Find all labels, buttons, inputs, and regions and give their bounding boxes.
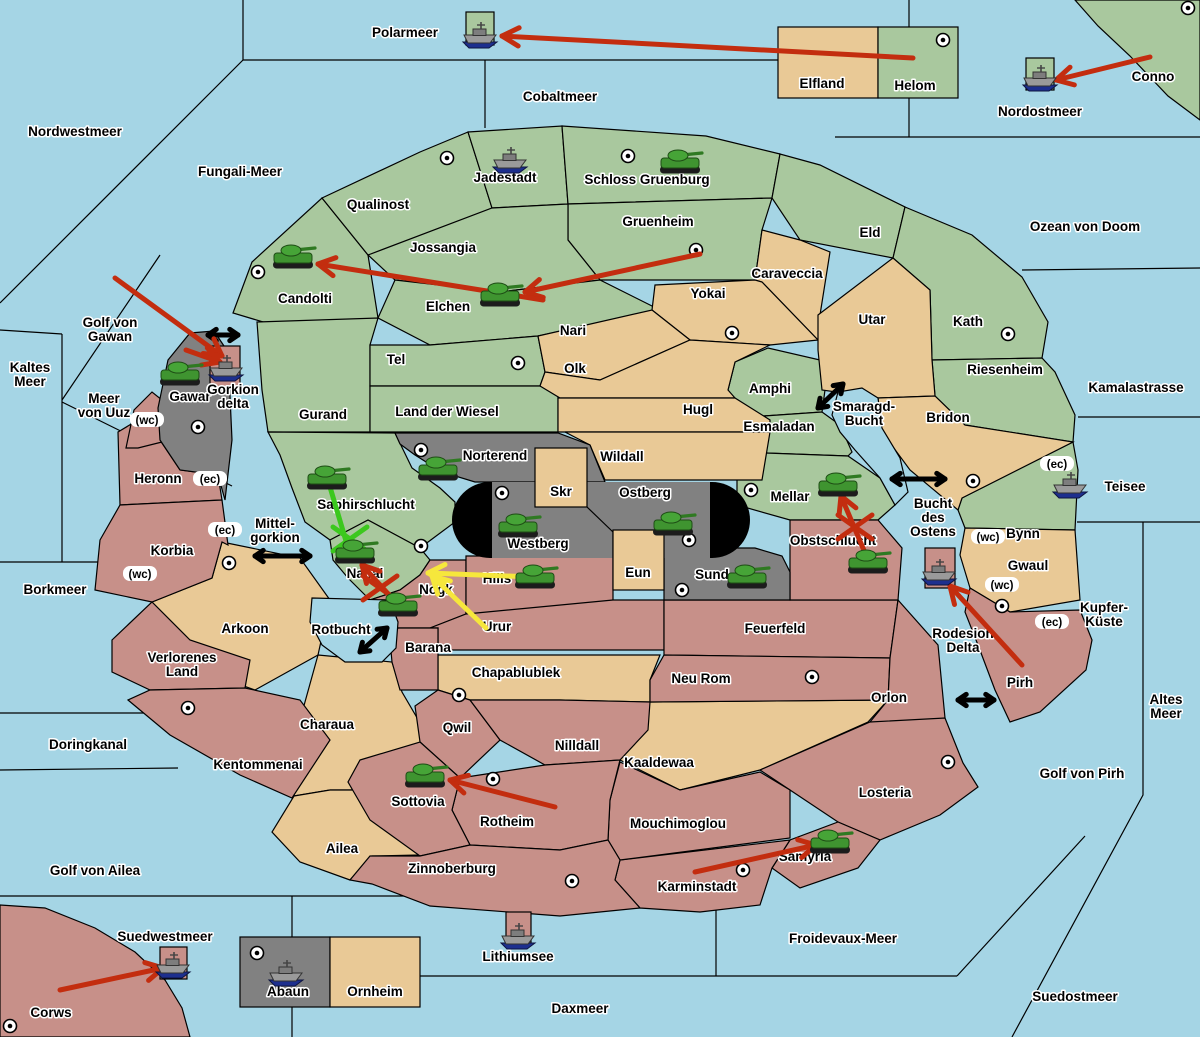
- sea-label-lithiumsee: Lithiumsee: [482, 949, 554, 964]
- gurand-label: Gurand: [299, 407, 347, 422]
- helom-label: Helom: [894, 78, 935, 93]
- eld-label: Eld: [859, 225, 880, 240]
- sea-label-borkmeer: Borkmeer: [23, 582, 87, 597]
- elfland-label: Elfland: [799, 76, 844, 91]
- ostberg-label: Ostberg: [619, 485, 671, 500]
- map-canvas: CandoltiQualinostJadestadtSchloss Gruenb…: [0, 0, 1200, 1037]
- city-marker: [996, 600, 1009, 613]
- city-marker: [415, 540, 428, 553]
- coast-status-badge: (ec): [1040, 456, 1074, 471]
- sea-label-fungali-meer: Fungali-Meer: [198, 164, 283, 179]
- city-marker: [496, 487, 509, 500]
- sea-label-golf-von-gawan: Golf vonGawan: [83, 315, 138, 344]
- amphi-label: Amphi: [749, 381, 791, 396]
- city-marker: [415, 444, 428, 457]
- city-marker: [737, 864, 750, 877]
- gruenheim-label: Gruenheim: [622, 214, 693, 229]
- coast-status-badge: (ec): [193, 471, 227, 486]
- city-marker: [192, 421, 205, 434]
- tel-label: Tel: [387, 352, 406, 367]
- svg-text:(ec): (ec): [200, 474, 221, 486]
- game-map: CandoltiQualinostJadestadtSchloss Gruenb…: [0, 0, 1200, 1037]
- sea-label-nordwestmeer: Nordwestmeer: [28, 124, 123, 139]
- sea-label-suedostmeer: Suedostmeer: [1032, 989, 1118, 1004]
- city-marker: [252, 266, 265, 279]
- wildall-label: Wildall: [600, 449, 643, 464]
- ornheim-label: Ornheim: [347, 984, 403, 999]
- sea-label-kaltes-meer: KaltesMeer: [10, 360, 51, 389]
- ailea-label: Ailea: [326, 841, 359, 856]
- sea-label-polarmeer: Polarmeer: [372, 25, 439, 40]
- city-marker: [4, 1020, 17, 1033]
- schloss-gruenburg-label: Schloss Gruenburg: [584, 172, 709, 187]
- bynn-label: Bynn: [1006, 526, 1040, 541]
- heronn-label: Heronn: [134, 471, 181, 486]
- sea-label-rotbucht: Rotbucht: [311, 622, 371, 637]
- city-marker: [726, 327, 739, 340]
- bridon-label: Bridon: [926, 410, 970, 425]
- city-marker: [622, 150, 635, 163]
- losteria-label: Losteria: [859, 785, 912, 800]
- caraveccia-label: Caraveccia: [751, 266, 823, 281]
- sottovia-label: Sottovia: [391, 794, 445, 809]
- city-marker: [942, 756, 955, 769]
- conno-label: Conno: [1132, 69, 1175, 84]
- city-marker: [223, 557, 236, 570]
- city-marker: [967, 475, 980, 488]
- sea-label-froidevaux-meer: Froidevaux-Meer: [789, 931, 898, 946]
- coast-status-badge: (wc): [130, 412, 164, 427]
- yokai-label: Yokai: [690, 286, 725, 301]
- pirh-label: Pirh: [1007, 675, 1033, 690]
- sea-label-cobaltmeer: Cobaltmeer: [523, 89, 598, 104]
- sea-label-kamalastrasse: Kamalastrasse: [1088, 380, 1184, 395]
- kath-label: Kath: [953, 314, 983, 329]
- city-marker: [566, 875, 579, 888]
- territory-eun[interactable]: [613, 530, 664, 590]
- svg-text:(wc): (wc): [991, 580, 1014, 592]
- gwaul-label: Gwaul: [1008, 558, 1049, 573]
- city-marker: [806, 671, 819, 684]
- skr-label: Skr: [550, 484, 573, 499]
- svg-text:(ec): (ec): [1047, 459, 1068, 471]
- feuerfeld-label: Feuerfeld: [745, 621, 806, 636]
- city-marker: [1002, 328, 1015, 341]
- olk-label: Olk: [564, 361, 586, 376]
- coast-status-badge: (ec): [1035, 614, 1069, 629]
- barana-label: Barana: [405, 640, 451, 655]
- neu-rom-label: Neu Rom: [671, 671, 730, 686]
- territory-gruenheim[interactable]: [568, 198, 772, 280]
- city-marker: [441, 152, 454, 165]
- chapablublek-label: Chapablublek: [472, 665, 561, 680]
- sea-label-nordostmeer: Nordostmeer: [998, 104, 1083, 119]
- city-marker: [745, 484, 758, 497]
- esmaladan-label: Esmaladan: [743, 419, 814, 434]
- city-marker: [676, 584, 689, 597]
- sea-label-golf-von-pirh: Golf von Pirh: [1040, 766, 1125, 781]
- city-marker: [453, 689, 466, 702]
- svg-text:(wc): (wc): [129, 569, 152, 581]
- korbia-label: Korbia: [151, 543, 194, 558]
- jossangia-label: Jossangia: [410, 240, 477, 255]
- sea-label-teisee: Teisee: [1104, 479, 1146, 494]
- norterend-label: Norterend: [463, 448, 528, 463]
- hugl-label: Hugl: [683, 402, 713, 417]
- rotheim-label: Rotheim: [480, 814, 534, 829]
- city-marker: [487, 773, 500, 786]
- kaaldewaa-label: Kaaldewaa: [624, 755, 694, 770]
- nilldall-label: Nilldall: [555, 738, 599, 753]
- karminstadt-label: Karminstadt: [658, 879, 737, 894]
- mellar-label: Mellar: [770, 489, 810, 504]
- elchen-label: Elchen: [426, 299, 470, 314]
- qwil-label: Qwil: [443, 720, 472, 735]
- city-marker: [182, 702, 195, 715]
- coast-status-badge: (wc): [123, 566, 157, 581]
- city-marker: [512, 357, 525, 370]
- eun-label: Eun: [625, 565, 651, 580]
- orlon-label: Orlon: [871, 690, 907, 705]
- sea-label-altes-meer: AltesMeer: [1149, 692, 1182, 721]
- svg-text:(wc): (wc): [136, 415, 159, 427]
- sea-label-mittelgorkion: Mittel-gorkion: [250, 516, 300, 545]
- riesenheim-label: Riesenheim: [967, 362, 1043, 377]
- coast-status-badge: (wc): [971, 529, 1005, 544]
- city-marker: [251, 947, 264, 960]
- utar-label: Utar: [858, 312, 886, 327]
- kentommenai-label: Kentommenai: [213, 757, 302, 772]
- sea-label-ozean-von-doom: Ozean von Doom: [1030, 219, 1140, 234]
- zinnoberburg-label: Zinnoberburg: [408, 861, 496, 876]
- svg-text:(ec): (ec): [215, 525, 236, 537]
- city-marker: [1182, 2, 1195, 15]
- sea-label-suedwestmeer: Suedwestmeer: [117, 929, 213, 944]
- svg-text:(wc): (wc): [977, 532, 1000, 544]
- nari-label: Nari: [560, 323, 586, 338]
- land-der-wiesel-label: Land der Wiesel: [395, 404, 498, 419]
- mouchimoglou-label: Mouchimoglou: [630, 816, 726, 831]
- sea-label-daxmeer: Daxmeer: [551, 1001, 609, 1016]
- coast-status-badge: (ec): [208, 522, 242, 537]
- westberg-label: Westberg: [507, 536, 568, 551]
- qualinost-label: Qualinost: [347, 197, 410, 212]
- svg-text:(ec): (ec): [1042, 617, 1063, 629]
- arkoon-label: Arkoon: [221, 621, 268, 636]
- sund-label: Sund: [695, 567, 729, 582]
- sea-label-golf-von-ailea: Golf von Ailea: [50, 863, 141, 878]
- coast-status-badge: (wc): [985, 577, 1019, 592]
- corws-label: Corws: [30, 1005, 71, 1020]
- sea-label-doringkanal: Doringkanal: [49, 737, 127, 752]
- city-marker: [937, 34, 950, 47]
- candolti-label: Candolti: [278, 291, 332, 306]
- territory-hugl[interactable]: [558, 398, 770, 432]
- gawar-label: Gawar: [169, 389, 211, 404]
- charaua-label: Charaua: [300, 717, 355, 732]
- sea-label-kupfer-kueste: Kupfer-Küste: [1080, 600, 1128, 629]
